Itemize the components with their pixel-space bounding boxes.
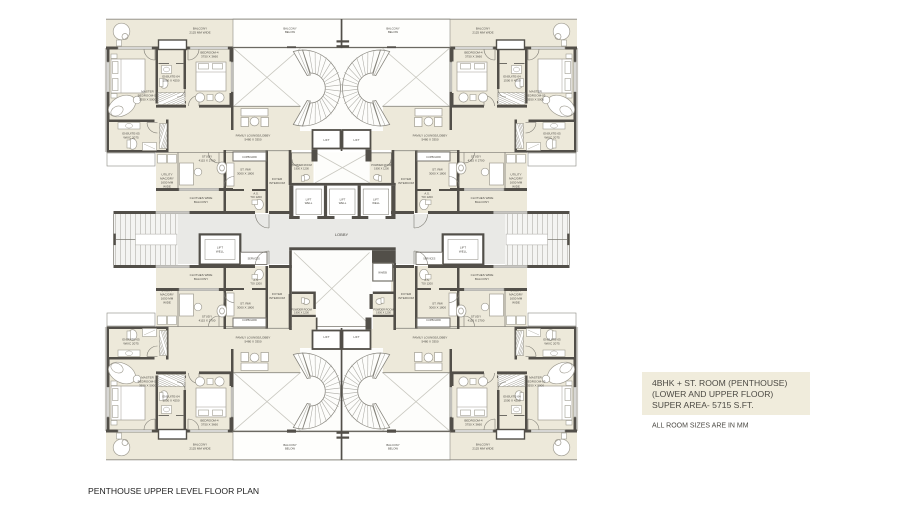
svg-text:WKIC 2075: WKIC 2075 bbox=[123, 136, 139, 140]
svg-text:3750 X 3660: 3750 X 3660 bbox=[465, 423, 482, 427]
svg-text:1900 X 1200: 1900 X 1200 bbox=[376, 311, 391, 315]
svg-text:3550 X 5000: 3550 X 5000 bbox=[139, 98, 156, 102]
svg-text:INTERCOM: INTERCOM bbox=[269, 181, 286, 185]
svg-text:TOI 1200: TOI 1200 bbox=[250, 282, 262, 286]
svg-text:1500 X 4250: 1500 X 4250 bbox=[503, 79, 520, 83]
svg-text:BALCONY: BALCONY bbox=[475, 277, 489, 281]
svg-text:WIDE: WIDE bbox=[163, 301, 171, 305]
svg-text:WIDE: WIDE bbox=[512, 301, 520, 305]
svg-text:WKIC 2075: WKIC 2075 bbox=[123, 342, 139, 346]
svg-text:LIFT: LIFT bbox=[323, 138, 329, 142]
svg-text:INTERCOM: INTERCOM bbox=[398, 181, 415, 185]
svg-text:3000 X 1800: 3000 X 1800 bbox=[429, 306, 446, 310]
svg-text:5480 X 3350: 5480 X 3350 bbox=[244, 340, 261, 344]
svg-text:1500 X 4250: 1500 X 4250 bbox=[503, 399, 520, 403]
svg-text:2125 MM WIDE: 2125 MM WIDE bbox=[189, 31, 210, 35]
svg-text:WIDE: WIDE bbox=[163, 185, 171, 189]
svg-text:ALL ROOM SIZES ARE IN MM: ALL ROOM SIZES ARE IN MM bbox=[652, 423, 749, 430]
svg-text:3750 X 3660: 3750 X 3660 bbox=[201, 55, 218, 59]
svg-text:5480 X 3350: 5480 X 3350 bbox=[421, 138, 438, 142]
svg-text:WELL: WELL bbox=[459, 250, 468, 254]
svg-text:1900 X 1200: 1900 X 1200 bbox=[294, 311, 309, 315]
svg-text:1500 X 4250: 1500 X 4250 bbox=[162, 399, 179, 403]
svg-text:WELL: WELL bbox=[216, 250, 225, 254]
svg-text:LOBBY: LOBBY bbox=[335, 232, 349, 237]
svg-text:SERVICES: SERVICES bbox=[423, 258, 435, 261]
svg-text:3550 X 5000: 3550 X 5000 bbox=[139, 384, 156, 388]
svg-text:WKIC 2075: WKIC 2075 bbox=[544, 342, 560, 346]
svg-text:CUPBOARD: CUPBOARD bbox=[242, 155, 257, 159]
svg-text:4115 X 2700: 4115 X 2700 bbox=[468, 159, 485, 163]
svg-text:BALCONY: BALCONY bbox=[194, 277, 208, 281]
svg-text:SERVICES: SERVICES bbox=[248, 258, 260, 261]
svg-text:WELL: WELL bbox=[372, 201, 380, 205]
svg-text:BELOW: BELOW bbox=[388, 447, 398, 451]
svg-text:3000 X 1800: 3000 X 1800 bbox=[429, 172, 446, 176]
svg-text:PENTHOUSE UPPER LEVEL FLOOR PL: PENTHOUSE UPPER LEVEL FLOOR PLAN bbox=[88, 486, 259, 496]
svg-text:3550 X 5000: 3550 X 5000 bbox=[527, 98, 544, 102]
svg-text:1500 X 4250: 1500 X 4250 bbox=[162, 79, 179, 83]
svg-text:CUPBOARD: CUPBOARD bbox=[426, 318, 441, 322]
svg-text:LIFT: LIFT bbox=[353, 335, 359, 339]
svg-text:WKIC 2075: WKIC 2075 bbox=[544, 136, 560, 140]
svg-text:3550 X 5000: 3550 X 5000 bbox=[527, 384, 544, 388]
svg-text:LIFT: LIFT bbox=[353, 138, 359, 142]
svg-text:2125 MM WIDE: 2125 MM WIDE bbox=[189, 447, 210, 451]
svg-text:5480 X 3350: 5480 X 3350 bbox=[421, 340, 438, 344]
svg-text:BALCONY: BALCONY bbox=[475, 200, 489, 204]
svg-text:4115 X 2700: 4115 X 2700 bbox=[199, 319, 216, 323]
svg-text:WH/DB: WH/DB bbox=[378, 271, 387, 275]
svg-text:INTERCOM: INTERCOM bbox=[269, 296, 286, 300]
svg-text:1900 X 1200: 1900 X 1200 bbox=[294, 166, 309, 170]
svg-text:BALCONY: BALCONY bbox=[194, 200, 208, 204]
svg-text:WELL: WELL bbox=[339, 201, 347, 205]
svg-text:3750 X 3660: 3750 X 3660 bbox=[201, 423, 218, 427]
svg-text:BELOW: BELOW bbox=[388, 30, 398, 34]
svg-text:CUPBOARD: CUPBOARD bbox=[426, 155, 441, 159]
svg-text:3000 X 1800: 3000 X 1800 bbox=[237, 306, 254, 310]
svg-text:TOI 1200: TOI 1200 bbox=[421, 195, 433, 199]
svg-text:CUPBOARD: CUPBOARD bbox=[242, 318, 257, 322]
svg-text:TOI 1200: TOI 1200 bbox=[250, 195, 262, 199]
svg-text:4115 X 2700: 4115 X 2700 bbox=[468, 319, 485, 323]
svg-text:SUPER AREA- 5715 S.FT.: SUPER AREA- 5715 S.FT. bbox=[652, 400, 754, 410]
svg-text:4BHK + ST. ROOM (PENTHOUSE): 4BHK + ST. ROOM (PENTHOUSE) bbox=[652, 378, 788, 388]
svg-text:TOI 1200: TOI 1200 bbox=[421, 282, 433, 286]
svg-text:2125 MM WIDE: 2125 MM WIDE bbox=[472, 447, 493, 451]
svg-text:5480 X 3350: 5480 X 3350 bbox=[244, 138, 261, 142]
svg-text:WIDE: WIDE bbox=[512, 185, 520, 189]
svg-text:INTERCOM: INTERCOM bbox=[398, 296, 415, 300]
svg-text:WELL: WELL bbox=[305, 201, 313, 205]
svg-text:(LOWER AND UPPER FLOOR): (LOWER AND UPPER FLOOR) bbox=[652, 389, 773, 399]
svg-text:3000 X 1800: 3000 X 1800 bbox=[237, 172, 254, 176]
svg-text:4115 X 2700: 4115 X 2700 bbox=[199, 159, 216, 163]
svg-text:LIFT: LIFT bbox=[323, 335, 329, 339]
svg-text:1900 X 1200: 1900 X 1200 bbox=[374, 166, 389, 170]
svg-text:BELOW: BELOW bbox=[285, 30, 295, 34]
svg-text:3750 X 3660: 3750 X 3660 bbox=[465, 55, 482, 59]
svg-text:BELOW: BELOW bbox=[285, 447, 295, 451]
svg-text:2125 MM WIDE: 2125 MM WIDE bbox=[472, 31, 493, 35]
